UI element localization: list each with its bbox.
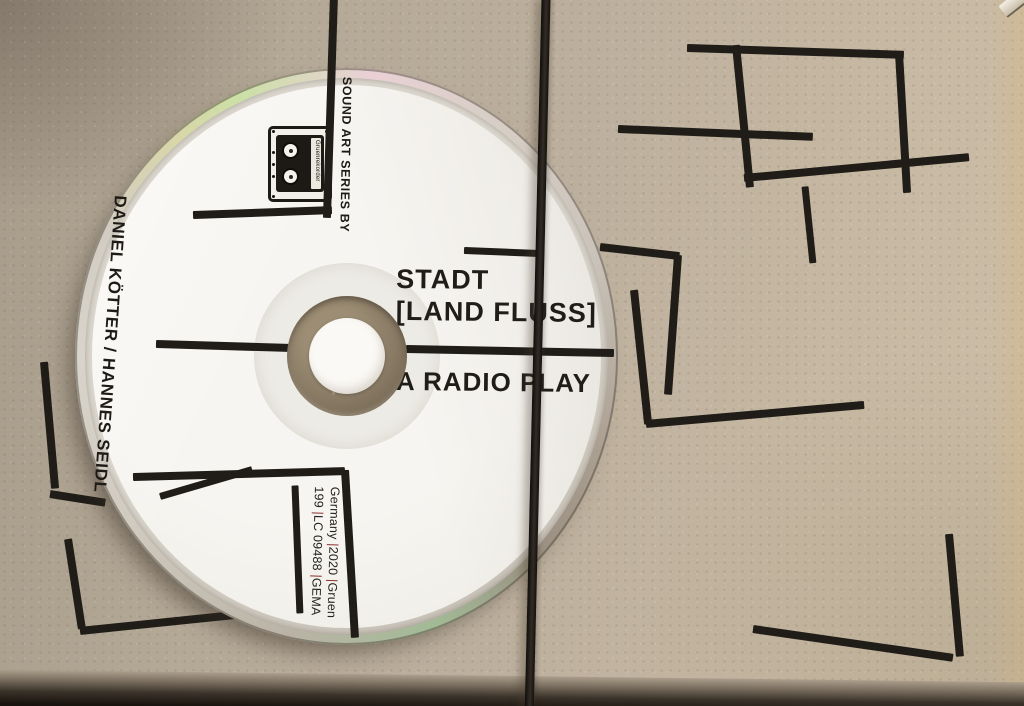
cassette-reel-top [282,142,299,159]
cassette-icon: Gruenrekorder [268,126,332,202]
album-subtitle: A RADIO PLAY [396,366,591,399]
album-title-line1: STADT [396,263,597,297]
album-title-line2: [LAND FLUSS] [396,295,597,329]
cassette-screw-dot [272,175,275,178]
cassette-reel-bottom [282,168,299,185]
cassette-screw-dot [272,163,275,166]
label-info: Germany |2020 |Gruen 199 |LC 09488 |GEMA [308,486,343,618]
cassette-screw-dot [272,130,275,133]
series-label: SOUND ART SERIES BY [337,77,354,233]
photo-background: Gruenrekorder SOUND ART SERIES BY DANIEL… [0,0,1024,706]
album-title: STADT [LAND FLUSS] [396,263,598,329]
cd-hub-knob [309,318,385,394]
cassette-brand-label: Gruenrekorder [314,140,320,182]
cassette-screw-dot [272,151,275,154]
cassette-body: Gruenrekorder [276,135,324,192]
label-info-line2: 199 |LC 09488 |GEMA [308,486,327,618]
cd-hub-speck [332,392,335,395]
cassette-brand-strip: Gruenrekorder [311,138,321,189]
cassette-screw-dot [272,195,275,198]
